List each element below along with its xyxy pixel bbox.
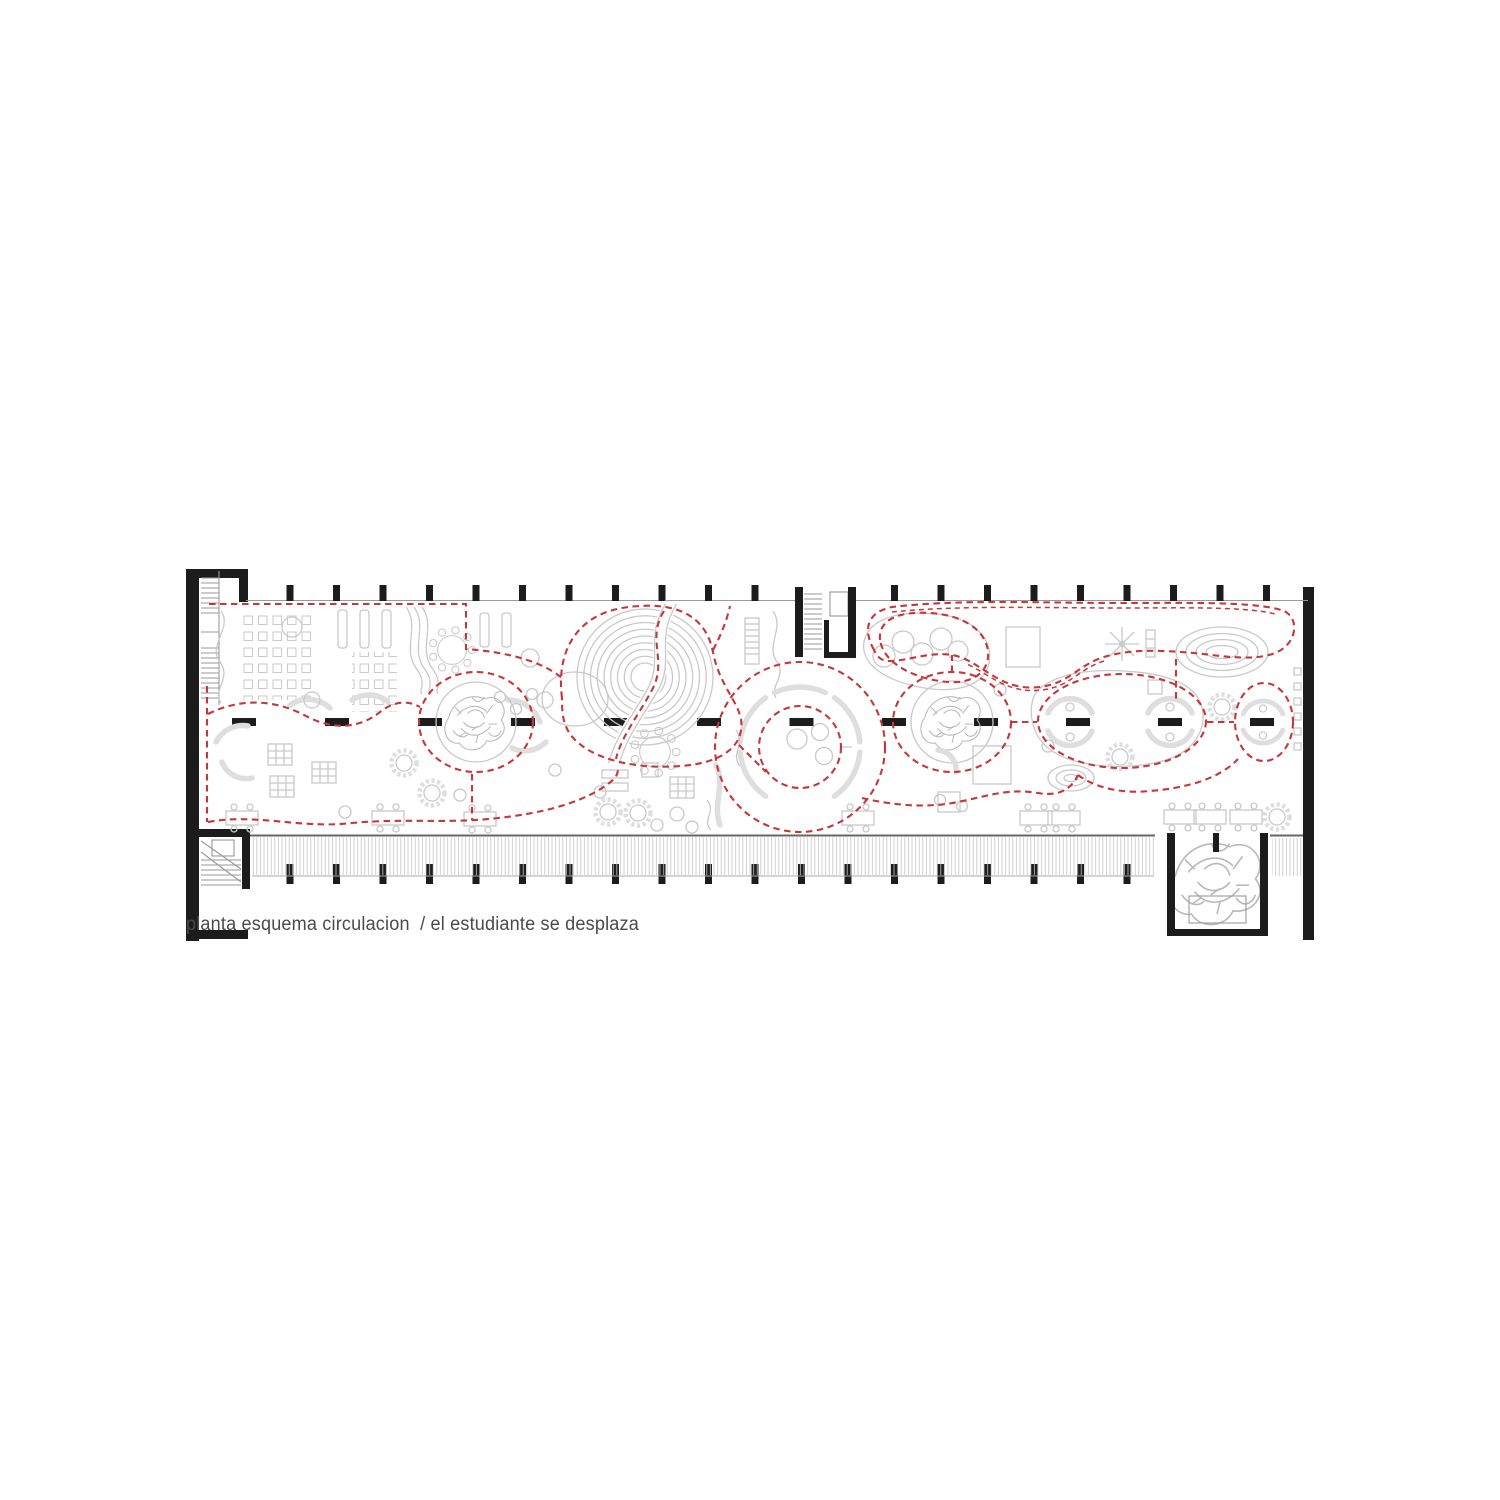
caption: planta esquema circulacion / el estudian… [186,914,639,936]
terrace-deck [200,836,1303,877]
floor-plan-svg [0,0,1500,1500]
stair-core [795,587,856,659]
star-symbol [1105,627,1139,661]
page-background [0,0,1500,1500]
